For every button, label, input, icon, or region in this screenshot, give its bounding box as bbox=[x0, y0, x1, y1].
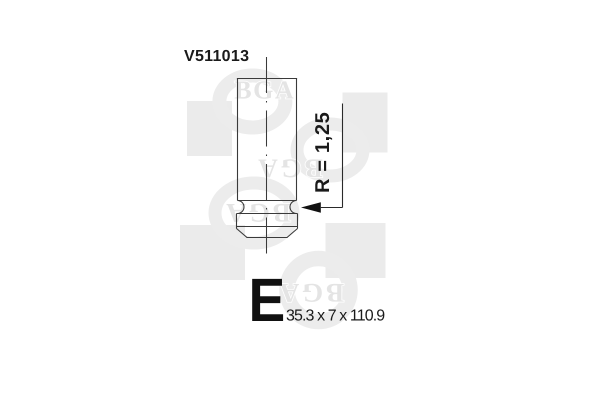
svg-text:BGA: BGA bbox=[234, 75, 295, 104]
svg-text:V511013: V511013 bbox=[184, 48, 249, 65]
svg-text:35.3 x 7 x 110.9: 35.3 x 7 x 110.9 bbox=[286, 308, 385, 325]
svg-text:E: E bbox=[249, 266, 286, 334]
svg-text:R = 1,25: R = 1,25 bbox=[312, 112, 334, 193]
svg-text:BGA: BGA bbox=[277, 278, 345, 308]
